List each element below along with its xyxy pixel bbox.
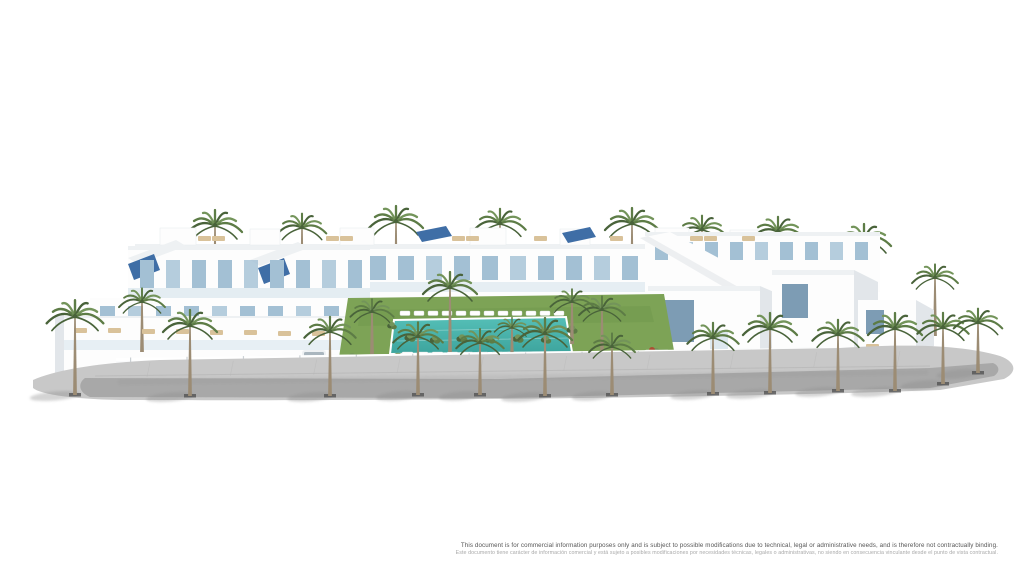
sun-lounger [142, 329, 155, 334]
facade-window [398, 256, 414, 280]
facade-window [510, 256, 526, 280]
sun-lounger [428, 311, 438, 316]
facade-window [594, 256, 610, 280]
facade-window [566, 256, 582, 280]
facade-window [192, 260, 206, 288]
sun-lounger [610, 236, 623, 241]
sun-lounger [498, 311, 508, 316]
sun-lounger [690, 236, 703, 241]
sun-lounger [742, 236, 755, 241]
facade-window [270, 260, 284, 288]
facade-window [218, 260, 232, 288]
sun-lounger [484, 311, 494, 316]
sun-lounger [452, 236, 465, 241]
facade-window [538, 256, 554, 280]
render-page: This document is for commercial informat… [0, 0, 1024, 576]
disclaimer-line-en: This document is for commercial informat… [456, 542, 998, 550]
sun-lounger [540, 311, 550, 316]
facade-window [370, 256, 386, 280]
sun-lounger [470, 311, 480, 316]
sun-lounger [526, 311, 536, 316]
facade-window [855, 242, 868, 260]
sun-lounger [340, 236, 353, 241]
facade-window [322, 260, 336, 288]
sun-lounger [466, 236, 479, 241]
facade-window [780, 242, 793, 260]
sun-lounger [108, 328, 121, 333]
facade-window [830, 242, 843, 260]
sun-lounger [244, 330, 257, 335]
sun-lounger [400, 311, 410, 316]
sun-lounger [704, 236, 717, 241]
sun-lounger [326, 236, 339, 241]
facade-window [348, 260, 362, 288]
development-render [0, 0, 1024, 576]
facade-window [805, 242, 818, 260]
sun-lounger [534, 236, 547, 241]
sun-lounger [278, 331, 291, 336]
sun-lounger [414, 311, 424, 316]
sun-lounger [198, 236, 211, 241]
sun-lounger [456, 311, 466, 316]
facade-window [730, 242, 743, 260]
disclaimer-line-es: Este documento tiene carácter de informa… [456, 550, 998, 557]
facade-window [296, 260, 310, 288]
villa-window [782, 284, 808, 318]
facade-window [426, 256, 442, 280]
legal-disclaimer: This document is for commercial informat… [456, 542, 998, 557]
sun-lounger [512, 311, 522, 316]
facade-window [482, 256, 498, 280]
facade-window [140, 260, 154, 288]
facade-window [166, 260, 180, 288]
sun-lounger [212, 236, 225, 241]
left-upper-windows [140, 260, 362, 288]
facade-window [244, 260, 258, 288]
facade-window [755, 242, 768, 260]
facade-window [622, 256, 638, 280]
terrace-balustrade [55, 340, 370, 350]
